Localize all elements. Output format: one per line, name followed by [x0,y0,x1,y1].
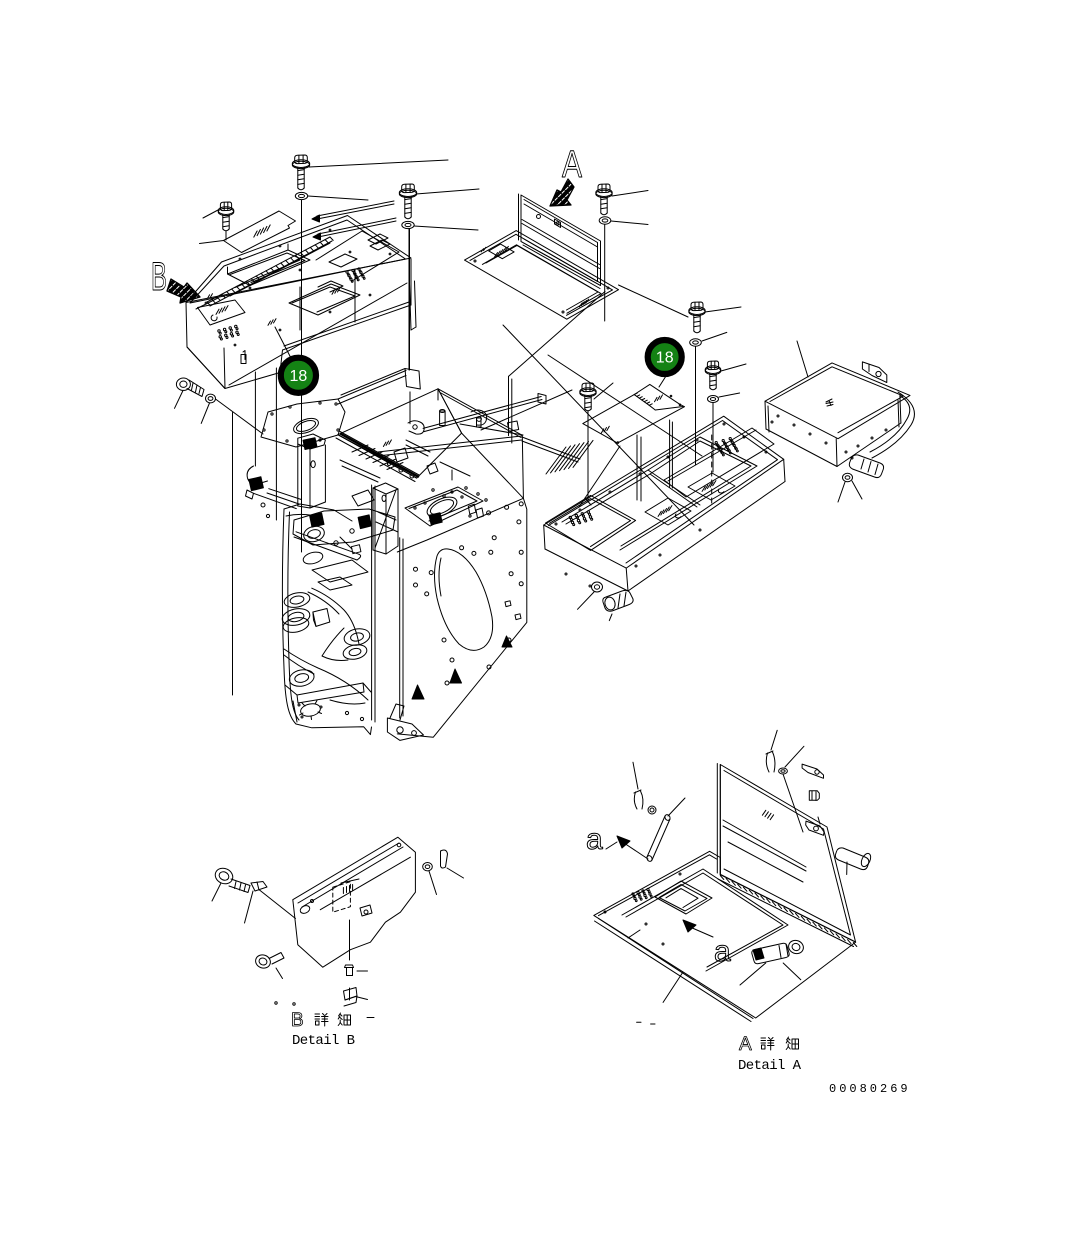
svg-text:B: B [151,255,167,299]
svg-text:B: B [291,1010,304,1031]
svg-text:A: A [562,144,583,186]
svg-text:a: a [714,935,731,968]
svg-text:18: 18 [290,368,308,385]
svg-text:18: 18 [656,350,674,367]
svg-text:Detail A: Detail A [738,1058,802,1074]
svg-text:a: a [586,823,603,856]
svg-text:Detail B: Detail B [292,1033,355,1049]
svg-text:A: A [739,1034,752,1055]
svg-text:00080269: 00080269 [829,1082,911,1096]
